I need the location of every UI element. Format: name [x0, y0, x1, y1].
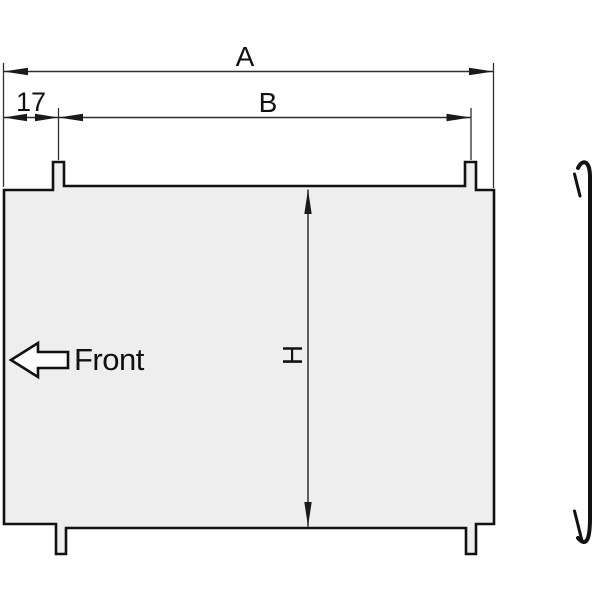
- front-label: Front: [74, 342, 145, 377]
- dim-b-label: B: [259, 87, 278, 118]
- dim-a-label: A: [236, 41, 255, 72]
- dim-h-label: H: [277, 345, 308, 365]
- dim-a-arrow-left: [4, 68, 29, 75]
- side-view-profile: [578, 162, 590, 542]
- side-view-top-flange-tick: [575, 174, 581, 196]
- dim-b-arrow-left: [59, 114, 84, 121]
- technical-drawing-page: A B 17 H Front: [0, 0, 600, 600]
- dim-17-label: 17: [16, 87, 46, 117]
- dim-a-arrow-right: [469, 68, 494, 75]
- dim-b-arrow-right: [447, 114, 472, 121]
- panel-dimension-drawing: A B 17 H Front: [0, 0, 600, 600]
